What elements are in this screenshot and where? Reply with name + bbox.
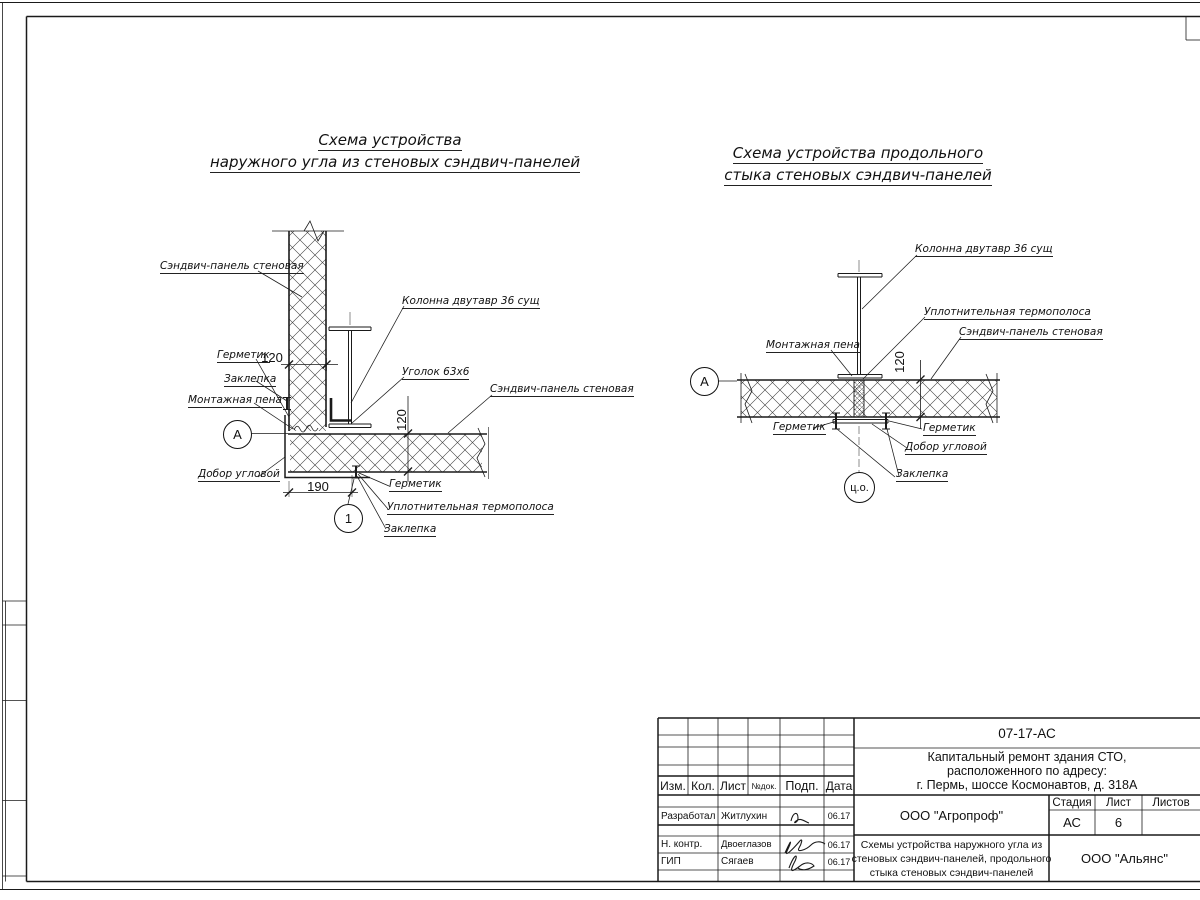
col-header-kol: Кол. [688,776,718,795]
row-developed-date: 06.17 [824,807,854,825]
dim-120-vertical-left: 120 [394,403,408,437]
org-customer: ООО "Альянс" [1049,835,1200,882]
label-column-ibeam: Колонна двутавр 36 сущ [402,296,540,309]
label-corner-trim-right: Добор угловой [905,442,987,455]
dim-190: 190 [300,479,336,493]
sheet-title-line-1: Схемы устройства наружного угла из [854,838,1049,851]
project-line-1: Капитальный ремонт здания СТО, [854,749,1200,764]
label-sealant-right: Герметик [923,423,976,436]
label-rivet-right: Заклепка [896,469,948,482]
stage-label: Стадия [1049,795,1095,810]
org-designer: ООО "Агропроф" [854,795,1049,835]
label-rivet-bottom: Заклепка [384,524,436,537]
project-line-2: расположенного по адресу: [854,763,1200,778]
label-thermo-strip: Уплотнительная термополоса [387,502,554,515]
label-corner-trim: Добор угловой [198,469,280,482]
col-header-izm: Изм. [658,776,688,795]
right-diagram-title: Схема устройства продольного стыка стено… [678,144,1038,186]
sheet-title-line-2: стеновых сэндвич-панелей, продольного [854,852,1049,865]
signature-strokes [785,813,825,870]
stage-value: АС [1049,810,1095,835]
label-thermo-strip-right: Уплотнительная термополоса [924,307,1091,320]
row-ncontrol-date: 06.17 [824,836,854,853]
label-column-ibeam-right: Колонна двутавр 36 сущ [915,244,1053,257]
label-sealant-bottom: Герметик [389,479,442,492]
project-line-3: г. Пермь, шоссе Космонавтов, д. 318А [854,777,1200,792]
label-sandwich-panel-wall: Сэндвич-панель стеновая [160,261,304,274]
label-mounting-foam: Монтажная пена [188,395,282,408]
left-diagram-title: Схема устройства наружного угла из стено… [210,131,570,173]
row-developed-role: Разработал [661,807,717,825]
col-header-ndok: №док. [748,776,780,795]
label-sandwich-panel-wall-2: Сэндвич-панель стеновая [490,384,634,397]
center-axis-marker: ц.о. [844,472,875,503]
sheet-label: Лист [1095,795,1142,810]
label-sandwich-panel-right: Сэндвич-панель стеновая [959,327,1103,340]
row-developed-name: Житлухин [721,807,779,825]
right-title-line2: стыка стеновых сэндвич-панелей [724,166,992,186]
drawing-sheet: Схема устройства наружного угла из стено… [0,0,1200,900]
col-header-podp: Подп. [780,776,824,795]
label-mounting-foam-right: Монтажная пена [766,340,860,353]
dim-120-vertical-right: 120 [892,345,906,379]
label-sealant-left: Герметик [773,422,826,435]
row-ncontrol-name: Двоеглазов [721,836,779,853]
col-header-data: Дата [824,776,854,795]
axis-marker-a-left: А [223,420,252,449]
sheet-value: 6 [1095,810,1142,835]
left-title-line1: Схема устройства [318,131,461,151]
doc-number: 07-17-АС [854,718,1200,748]
label-rivet-top: Заклепка [224,374,276,387]
sheets-label: Листов [1142,795,1200,810]
row-gip-role: ГИП [661,853,717,870]
axis-marker-a-right: А [690,367,719,396]
left-title-line2: наружного угла из стеновых сэндвич-панел… [210,153,580,173]
sheet-title-line-3: стыка стеновых сэндвич-панелей [854,866,1049,879]
right-title-line1: Схема устройства продольного [733,144,983,164]
detail-marker-1: 1 [334,504,363,533]
row-ncontrol-role: Н. контр. [661,836,717,853]
dim-120-horizontal: 120 [258,350,286,364]
col-header-list: Лист [718,776,748,795]
label-angle: Уголок 63х6 [402,367,469,380]
row-gip-name: Сягаев [721,853,779,870]
row-gip-date: 06.17 [824,853,854,870]
